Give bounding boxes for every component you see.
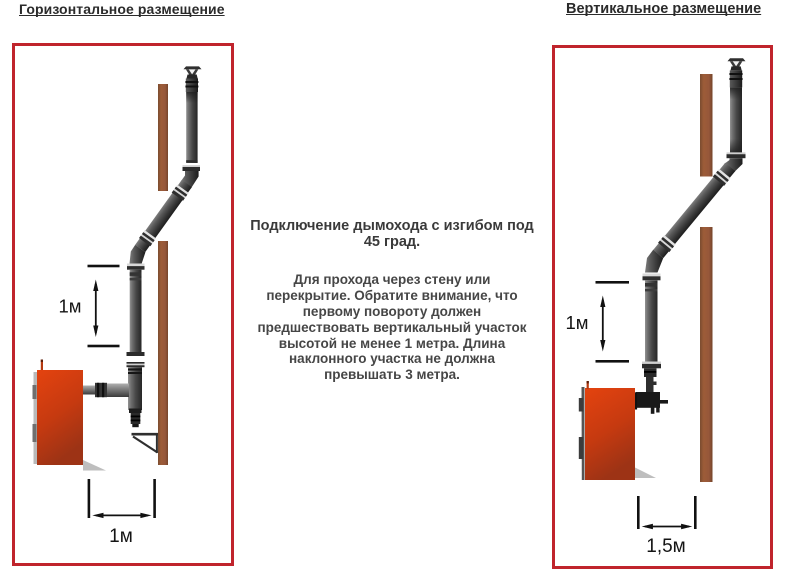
svg-text:1м: 1м <box>565 312 588 333</box>
svg-text:1м: 1м <box>58 296 81 317</box>
svg-text:1,5м: 1,5м <box>646 536 685 557</box>
svg-text:1м: 1м <box>109 526 133 547</box>
